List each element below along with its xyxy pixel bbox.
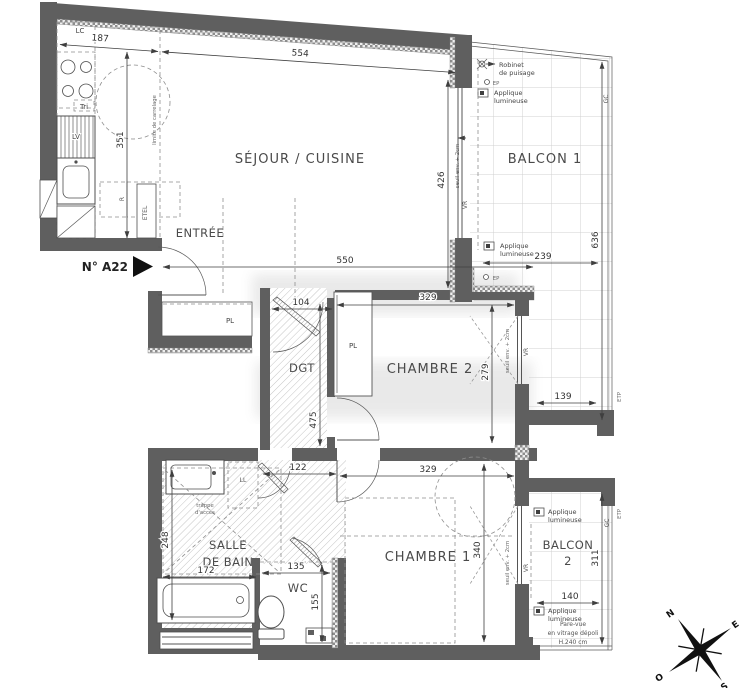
label-gc-balcon2: GC bbox=[604, 519, 611, 528]
room-label-entree: ENTRÉE bbox=[176, 225, 224, 240]
wall-light-icon bbox=[534, 607, 544, 615]
entrance-arrow-icon bbox=[133, 256, 153, 277]
label-lc: LC bbox=[76, 27, 85, 35]
dim-135: 135 bbox=[287, 562, 304, 572]
label-robinet-line1: Robinet bbox=[499, 61, 524, 69]
label-limite-carrelage: limite de carrelage bbox=[152, 95, 158, 145]
room-label-dgt: DGT bbox=[289, 361, 315, 375]
room-label-sdb-line1: SALLE bbox=[209, 538, 247, 552]
dim-172: 172 bbox=[197, 566, 214, 576]
label-seuil-chambre1: seuil env. + 2cm bbox=[505, 541, 511, 585]
label-vr-chambre2: VR bbox=[523, 348, 530, 356]
dim-329-bottom: 329 bbox=[419, 465, 436, 475]
label-etp-balcon1: ETP bbox=[617, 391, 623, 402]
dim-139: 139 bbox=[554, 392, 571, 402]
wall-light-icon bbox=[484, 242, 494, 250]
compass-o: O bbox=[654, 672, 666, 685]
label-etp-balcon2: ETP bbox=[617, 508, 623, 519]
label-applique3-line1: Applique bbox=[548, 508, 577, 516]
kitchen-window bbox=[40, 180, 57, 218]
dim-351: 351 bbox=[116, 131, 126, 148]
dim-104: 104 bbox=[292, 298, 309, 308]
label-pl-chambre2: PL bbox=[349, 342, 357, 350]
entrance-door bbox=[158, 247, 206, 295]
ep-icon bbox=[485, 80, 490, 85]
compass-s: S bbox=[719, 681, 730, 688]
label-trappe-line1: trappe bbox=[196, 503, 213, 509]
label-vr-sejour: VR bbox=[462, 201, 469, 209]
dim-187: 187 bbox=[91, 33, 109, 44]
dim-426: 426 bbox=[437, 171, 447, 188]
label-applique2-line2: lumineuse bbox=[500, 250, 534, 258]
label-trappe-line2: d'accès bbox=[195, 509, 215, 516]
label-applique1-line2: lumineuse bbox=[494, 97, 528, 105]
compass-e: E bbox=[730, 620, 741, 632]
dim-550: 550 bbox=[336, 256, 353, 266]
room-label-balcon2-line1: BALCON bbox=[543, 538, 594, 552]
dim-329-top: 329 bbox=[419, 293, 436, 303]
dim-122: 122 bbox=[289, 463, 306, 473]
toilet-icon bbox=[258, 596, 284, 639]
entry-cupboards bbox=[96, 65, 180, 238]
dim-475: 475 bbox=[309, 411, 319, 428]
fridge-icon bbox=[57, 206, 95, 238]
label-lv: LV bbox=[72, 133, 80, 141]
label-ep-top: EP bbox=[493, 81, 500, 87]
unit-number: N° A22 bbox=[82, 260, 128, 274]
label-ll: LL bbox=[240, 477, 247, 484]
label-vr-chambre1: VR bbox=[523, 564, 530, 572]
dim-248: 248 bbox=[161, 531, 171, 548]
label-pl-entree: PL bbox=[226, 317, 234, 325]
label-seuil-sejour: seuil env. + 2cm bbox=[455, 144, 461, 188]
label-etel: ETEL bbox=[142, 205, 149, 220]
floor-plan-page: SÉJOUR / CUISINE BALCON 1 ENTRÉE DGT CHA… bbox=[0, 0, 750, 688]
dim-311: 311 bbox=[591, 549, 601, 566]
sink-icon bbox=[57, 158, 95, 204]
label-parevue-line2: en vitrage dépoli bbox=[548, 630, 599, 637]
label-applique4-line1: Applique bbox=[548, 607, 577, 615]
label-tri: Tri bbox=[79, 103, 88, 111]
label-parevue-line1: Pare-vue bbox=[560, 621, 586, 628]
vanity-icon bbox=[166, 460, 224, 494]
ep-icon bbox=[484, 275, 489, 280]
wc-duct bbox=[306, 628, 332, 643]
label-gc-balcon1: GC bbox=[603, 95, 610, 104]
label-applique3-line2: lumineuse bbox=[548, 516, 582, 524]
dim-554: 554 bbox=[291, 48, 309, 59]
floor-plan-svg: SÉJOUR / CUISINE BALCON 1 ENTRÉE DGT CHA… bbox=[0, 0, 750, 688]
dim-340: 340 bbox=[473, 541, 483, 558]
room-label-balcon2-line2: 2 bbox=[564, 554, 572, 568]
label-seuil-chambre2: seuil env. + 2cm bbox=[505, 329, 511, 373]
compass-icon: N E S O bbox=[654, 608, 741, 688]
label-applique2-line1: Applique bbox=[500, 242, 529, 250]
dim-239: 239 bbox=[534, 252, 551, 262]
dim-279: 279 bbox=[481, 363, 491, 380]
dim-636: 636 bbox=[591, 231, 601, 248]
wall-light-icon bbox=[478, 89, 488, 97]
room-label-wc: WC bbox=[288, 581, 308, 595]
label-robinet-line2: de puisage bbox=[499, 69, 535, 77]
room-label-chambre2: CHAMBRE 2 bbox=[387, 362, 474, 377]
label-applique1-line1: Applique bbox=[494, 89, 523, 97]
room-label-chambre1: CHAMBRE 1 bbox=[385, 550, 472, 565]
room-label-sejour: SÉJOUR / CUISINE bbox=[235, 151, 365, 167]
compass-n: N bbox=[665, 608, 677, 621]
label-parevue-line3: H.240 cm bbox=[559, 639, 588, 646]
dim-155: 155 bbox=[311, 593, 321, 610]
dim-140: 140 bbox=[561, 592, 578, 602]
label-r: R bbox=[119, 197, 126, 201]
room-label-balcon1: BALCON 1 bbox=[508, 152, 583, 167]
entree-closet bbox=[162, 302, 252, 336]
bathroom-window bbox=[160, 632, 253, 649]
wall-light-icon bbox=[534, 508, 544, 516]
label-ep-mid: EP bbox=[493, 276, 500, 282]
